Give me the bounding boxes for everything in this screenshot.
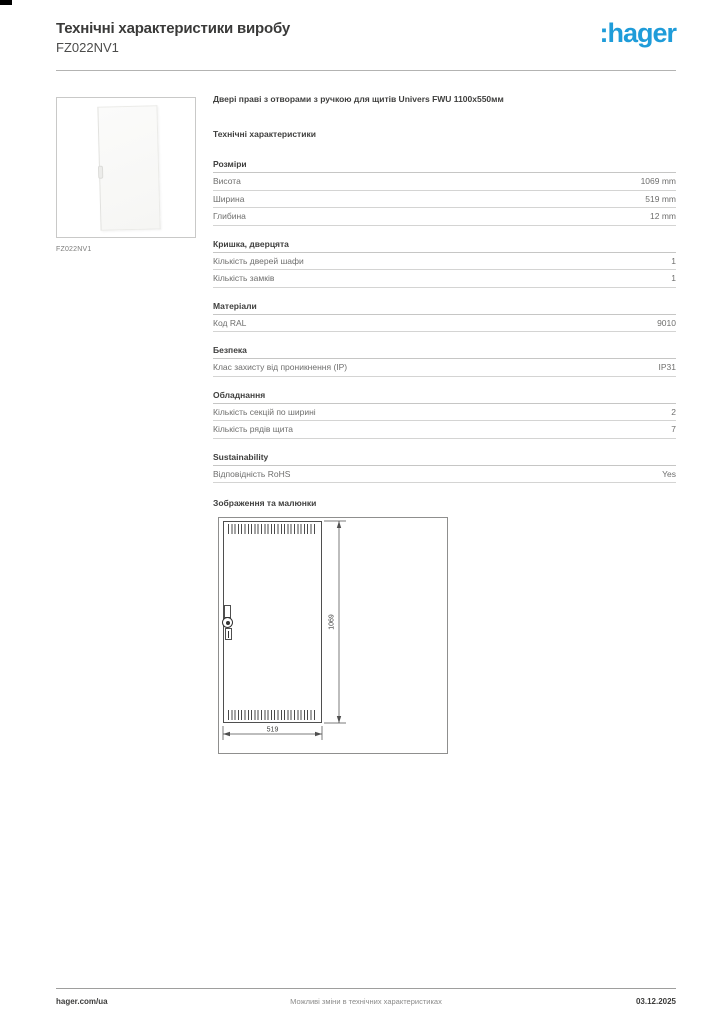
product-door-image bbox=[97, 105, 160, 231]
spec-label: Ширина bbox=[213, 194, 244, 204]
spec-section-materials: Матеріали Код RAL 9010 bbox=[213, 301, 676, 333]
spec-label: Код RAL bbox=[213, 318, 246, 328]
photo-caption: FZ022NV1 bbox=[56, 246, 196, 253]
spec-section-sustainability: Sustainability Відповідність RoHS Yes bbox=[213, 452, 676, 484]
product-code: FZ022NV1 bbox=[56, 40, 676, 55]
section-title: Кришка, дверцята bbox=[213, 239, 676, 253]
hager-logo: :hager bbox=[599, 18, 676, 49]
spec-row: Відповідність RoHS Yes bbox=[213, 466, 676, 484]
spec-label: Відповідність RoHS bbox=[213, 469, 290, 479]
spec-row: Ширина 519 mm bbox=[213, 191, 676, 209]
spec-label: Клас захисту від проникнення (IP) bbox=[213, 362, 347, 372]
product-description: Двері праві з отворами з ручкою для щиті… bbox=[213, 94, 676, 104]
spec-label: Висота bbox=[213, 176, 241, 186]
dimension-lines: 1069 519 bbox=[219, 518, 447, 753]
spec-label: Кількість замків bbox=[213, 273, 274, 283]
spec-row: Кількість рядів щита 7 bbox=[213, 421, 676, 439]
dimension-width-label: 519 bbox=[267, 727, 279, 734]
spec-section-dimensions: Розміри Висота 1069 mm Ширина 519 mm Гли… bbox=[213, 159, 676, 226]
page-header: Технічні характеристики виробу FZ022NV1 … bbox=[56, 20, 676, 55]
door-handle-detail bbox=[98, 166, 103, 179]
dimension-height-label: 1069 bbox=[329, 614, 336, 630]
section-title: Розміри bbox=[213, 159, 676, 173]
print-corner-mark bbox=[0, 0, 12, 5]
spec-value: IP31 bbox=[659, 362, 677, 372]
spec-value: 2 bbox=[671, 407, 676, 417]
spec-value: Yes bbox=[662, 469, 676, 479]
spec-value: 1 bbox=[671, 256, 676, 266]
spec-row: Кількість дверей шафи 1 bbox=[213, 253, 676, 271]
footer-date: 03.12.2025 bbox=[636, 997, 676, 1006]
footer-website: hager.com/ua bbox=[56, 997, 108, 1006]
drawing-lock-cylinder bbox=[222, 617, 233, 628]
product-photo-column: FZ022NV1 bbox=[56, 97, 196, 253]
spec-value: 9010 bbox=[657, 318, 676, 328]
spec-value: 1069 mm bbox=[641, 176, 676, 186]
technical-drawing: 1069 519 bbox=[218, 517, 448, 754]
spec-row: Висота 1069 mm bbox=[213, 173, 676, 191]
spec-row: Код RAL 9010 bbox=[213, 315, 676, 333]
spec-label: Кількість секцій по ширині bbox=[213, 407, 316, 417]
section-title: Sustainability bbox=[213, 452, 676, 466]
spec-row: Кількість замків 1 bbox=[213, 270, 676, 288]
page-title: Технічні характеристики виробу bbox=[56, 20, 676, 37]
product-photo bbox=[56, 97, 196, 238]
spec-value: 12 mm bbox=[650, 211, 676, 221]
drawing-heading: Зображення та малюнки bbox=[213, 498, 676, 508]
spec-label: Кількість дверей шафи bbox=[213, 256, 304, 266]
spec-section-cover-doors: Кришка, дверцята Кількість дверей шафи 1… bbox=[213, 239, 676, 288]
spec-content: Двері праві з отворами з ручкою для щиті… bbox=[213, 94, 676, 754]
section-title: Обладнання bbox=[213, 390, 676, 404]
spec-section-equipment: Обладнання Кількість секцій по ширині 2 … bbox=[213, 390, 676, 439]
spec-sections: Розміри Висота 1069 mm Ширина 519 mm Гли… bbox=[213, 159, 676, 483]
footer-disclaimer: Можливі зміни в технічних характеристика… bbox=[290, 997, 442, 1006]
section-title: Матеріали bbox=[213, 301, 676, 315]
spec-row: Кількість секцій по ширині 2 bbox=[213, 404, 676, 422]
spec-value: 1 bbox=[671, 273, 676, 283]
specs-heading: Технічні характеристики bbox=[213, 129, 676, 139]
footer-divider bbox=[56, 988, 676, 989]
spec-section-safety: Безпека Клас захисту від проникнення (IP… bbox=[213, 345, 676, 377]
spec-value: 519 mm bbox=[645, 194, 676, 204]
spec-label: Глибина bbox=[213, 211, 246, 221]
drawing-lock-bottom bbox=[225, 628, 232, 640]
spec-row: Клас захисту від проникнення (IP) IP31 bbox=[213, 359, 676, 377]
spec-value: 7 bbox=[671, 424, 676, 434]
header-divider bbox=[56, 70, 676, 71]
section-title: Безпека bbox=[213, 345, 676, 359]
spec-label: Кількість рядів щита bbox=[213, 424, 293, 434]
spec-row: Глибина 12 mm bbox=[213, 208, 676, 226]
